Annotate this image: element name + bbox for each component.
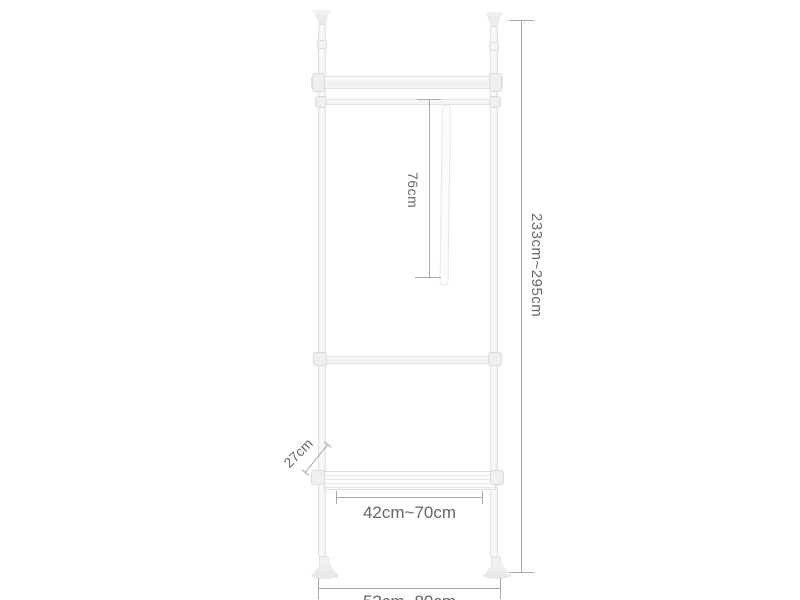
product-dimension-diagram: 233cm~295cm 76cm 27cm 42cm~70cm 52cm~80c…: [0, 0, 800, 600]
hang-drop-label: 76cm: [405, 172, 421, 208]
total-height-dimension-line: [521, 21, 522, 573]
base-width-label: 52cm~80cm: [318, 592, 501, 600]
upper-support-bar: [322, 99, 494, 105]
shelf-depth-start-tick: [301, 469, 309, 475]
top-bar-right-clamp: [489, 73, 502, 92]
shelf-left-clamp: [311, 470, 325, 485]
total-height-label: 233cm~295cm: [528, 213, 545, 317]
upper-bar-left-clamp: [315, 96, 327, 108]
base-width-dimension-line: [318, 588, 501, 589]
total-height-bottom-tick: [509, 572, 534, 573]
upper-bar-right-clamp: [489, 96, 501, 108]
top-hanger-bar: [311, 76, 503, 89]
left-pole-adjuster: [317, 40, 327, 49]
hang-drop-dimension-line: [429, 100, 430, 278]
bar-width-label: 42cm~70cm: [336, 503, 483, 523]
middle-bar-left-clamp: [313, 352, 327, 366]
shelf-right-clamp: [490, 470, 504, 485]
total-height-top-tick: [509, 20, 534, 21]
top-bar-left-clamp: [312, 73, 325, 92]
right-pole-adjuster: [489, 42, 499, 51]
left-foot-base: [311, 572, 339, 579]
bottom-shelf: [324, 471, 496, 490]
right-foot-base: [483, 572, 511, 579]
hang-drop-bottom-tick: [415, 277, 441, 278]
hang-drop-top-tick: [417, 99, 441, 100]
middle-bar: [320, 356, 496, 364]
hanging-strap: [439, 105, 451, 286]
middle-bar-right-clamp: [488, 352, 502, 366]
bar-width-dimension-line: [336, 497, 483, 498]
